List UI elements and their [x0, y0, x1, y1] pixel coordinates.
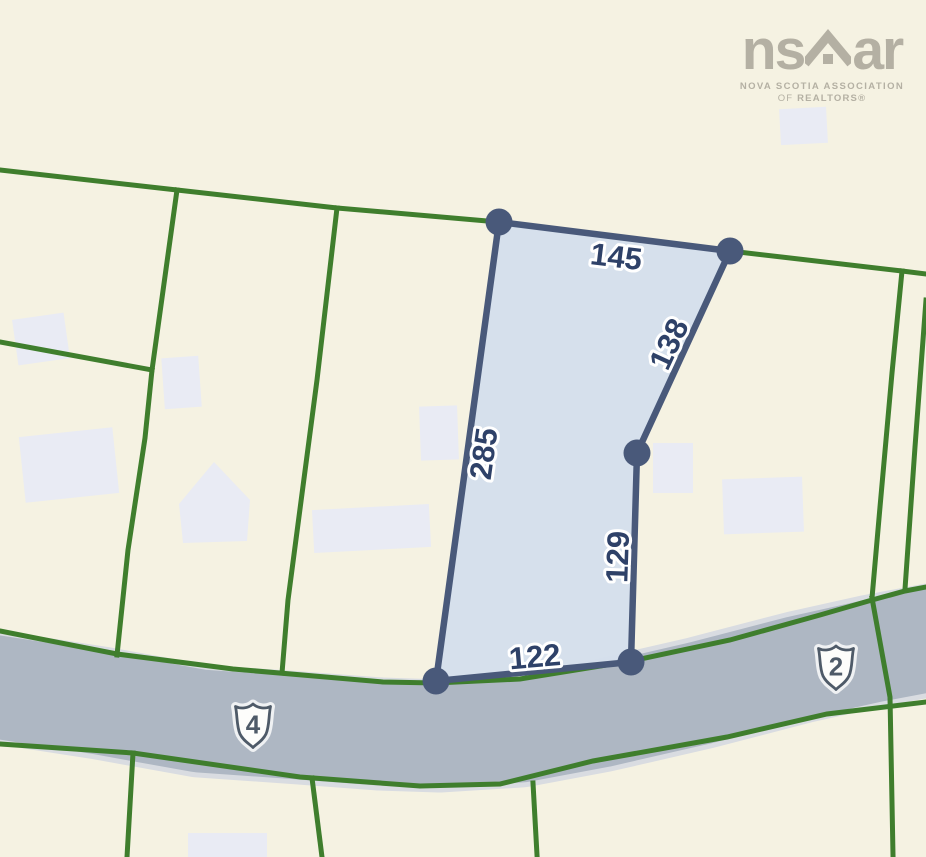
parcel-vertex [624, 440, 651, 467]
house-icon [805, 20, 851, 72]
nsar-wordmark: ns ar [730, 20, 914, 74]
parcel-vertex [486, 209, 513, 236]
route-number: 4 [246, 709, 261, 739]
route-shield-2: 2 [819, 646, 854, 690]
subject-parcel: 145 138 285 129 122 [423, 209, 744, 695]
building-footprint [161, 356, 201, 409]
boundary-line [282, 208, 337, 673]
nsar-wordmark-ar: ar [852, 28, 902, 74]
boundary-line [117, 190, 177, 655]
boundary-line [730, 251, 926, 274]
nsar-watermark: ns ar NOVA SCOTIA ASSOCIATION OF REALTOR… [730, 20, 914, 104]
building-footprint [779, 107, 828, 145]
dimension-label-left: 285 [463, 426, 505, 482]
building-footprint [653, 443, 693, 493]
boundary-line [533, 783, 537, 855]
boundary-line [0, 170, 499, 222]
dimension-label-lower-right: 129 [599, 530, 636, 583]
boundary-line [872, 271, 902, 598]
building-footprint [179, 462, 250, 543]
boundary-line [312, 778, 322, 857]
building-footprint [722, 477, 804, 535]
building-footprint [419, 405, 459, 460]
plat-map-drawing: 145 138 285 129 122 4 2 [0, 0, 926, 857]
nsar-realtors-text: REALTORS® [797, 93, 866, 104]
building-footprint [12, 313, 70, 366]
nsar-of-text: OF [778, 93, 794, 104]
nsar-wordmark-ns: ns [742, 28, 805, 74]
dimension-label-top: 145 [588, 236, 644, 277]
nsar-org-name-2: OF REALTORS® [730, 93, 914, 104]
route-shield-4: 4 [236, 704, 271, 748]
building-footprint [188, 833, 267, 857]
route-number: 2 [829, 651, 843, 681]
building-footprint [19, 427, 119, 502]
parcel-vertex [717, 238, 744, 265]
boundary-line [905, 300, 926, 589]
building-footprint [312, 504, 431, 553]
parcel-vertex [423, 668, 450, 695]
nsar-org-name: NOVA SCOTIA ASSOCIATION [730, 81, 914, 92]
parcel-vertex [618, 649, 645, 676]
plat-map: 145 138 285 129 122 4 2 ns ar NOVA SC [0, 0, 926, 857]
dimension-label-bottom: 122 [508, 637, 563, 676]
boundary-line [127, 753, 133, 857]
